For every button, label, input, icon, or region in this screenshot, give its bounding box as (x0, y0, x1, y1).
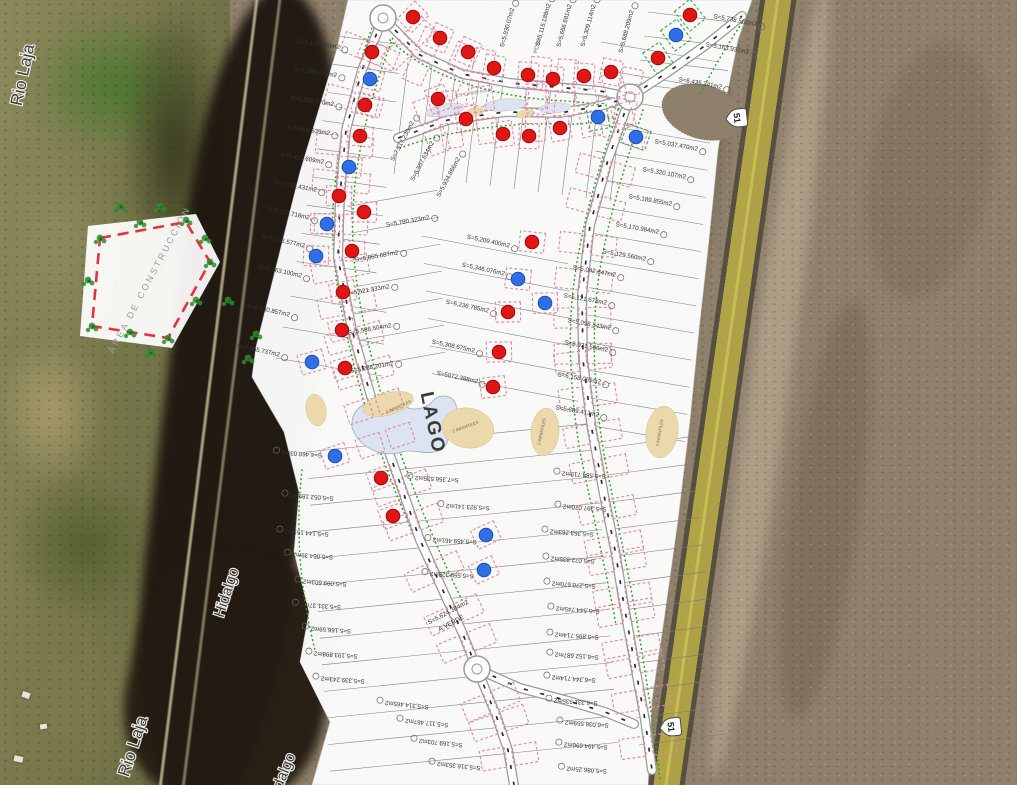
svg-text:51: 51 (666, 721, 677, 732)
red-lot-marker[interactable] (433, 31, 447, 45)
red-lot-marker[interactable] (374, 471, 388, 485)
blue-lot-marker[interactable] (538, 296, 552, 310)
subdivision-plat-overlay: S=5,112.850m2S=5,285.675m2S=5,358.970m2S… (0, 0, 1017, 785)
red-lot-marker[interactable] (459, 112, 473, 126)
place-label: Hidalgo (264, 751, 299, 785)
red-lot-marker[interactable] (336, 285, 350, 299)
red-lot-marker[interactable] (431, 92, 445, 106)
blue-lot-marker[interactable] (629, 130, 643, 144)
red-lot-marker[interactable] (357, 205, 371, 219)
red-lot-marker[interactable] (683, 8, 697, 22)
place-label: Rio Laja (114, 713, 152, 779)
blue-lot-marker[interactable] (320, 217, 334, 231)
plat-area (252, 0, 752, 785)
blue-lot-marker[interactable] (342, 160, 356, 174)
blue-lot-marker[interactable] (477, 563, 491, 577)
red-lot-marker[interactable] (461, 45, 475, 59)
red-lot-marker[interactable] (651, 51, 665, 65)
red-lot-marker[interactable] (335, 323, 349, 337)
red-lot-marker[interactable] (386, 509, 400, 523)
blue-lot-marker[interactable] (591, 110, 605, 124)
red-lot-marker[interactable] (492, 345, 506, 359)
red-lot-marker[interactable] (521, 68, 535, 82)
satellite-map: S=5,112.850m2S=5,285.675m2S=5,358.970m2S… (0, 0, 1017, 785)
red-lot-marker[interactable] (604, 65, 618, 79)
blue-lot-marker[interactable] (511, 272, 525, 286)
blue-lot-marker[interactable] (669, 28, 683, 42)
red-lot-marker[interactable] (577, 69, 591, 83)
red-lot-marker[interactable] (338, 361, 352, 375)
blue-lot-marker[interactable] (479, 528, 493, 542)
red-lot-marker[interactable] (487, 61, 501, 75)
red-lot-marker[interactable] (406, 10, 420, 24)
blue-lot-marker[interactable] (328, 449, 342, 463)
red-lot-marker[interactable] (496, 127, 510, 141)
place-label: Hidalgo (211, 566, 243, 620)
red-lot-marker[interactable] (365, 45, 379, 59)
highway-51-shield: 51 (659, 717, 682, 737)
red-lot-marker[interactable] (525, 235, 539, 249)
red-lot-marker[interactable] (353, 129, 367, 143)
red-lot-marker[interactable] (345, 244, 359, 258)
red-lot-marker[interactable] (486, 380, 500, 394)
blue-lot-marker[interactable] (309, 249, 323, 263)
place-label: Rio Laja (7, 42, 39, 107)
red-lot-marker[interactable] (358, 98, 372, 112)
blue-lot-marker[interactable] (305, 355, 319, 369)
red-lot-marker[interactable] (501, 305, 515, 319)
place-labels: Rio LajaHidalgoRio LajaHidalgo (7, 42, 299, 785)
lot-area-label: S=5,112.850m2 (296, 38, 341, 51)
red-lot-marker[interactable] (332, 189, 346, 203)
red-lot-marker[interactable] (522, 129, 536, 143)
svg-text:51: 51 (732, 112, 743, 123)
red-lot-marker[interactable] (553, 121, 567, 135)
red-lot-marker[interactable] (546, 72, 560, 86)
blue-lot-marker[interactable] (363, 72, 377, 86)
